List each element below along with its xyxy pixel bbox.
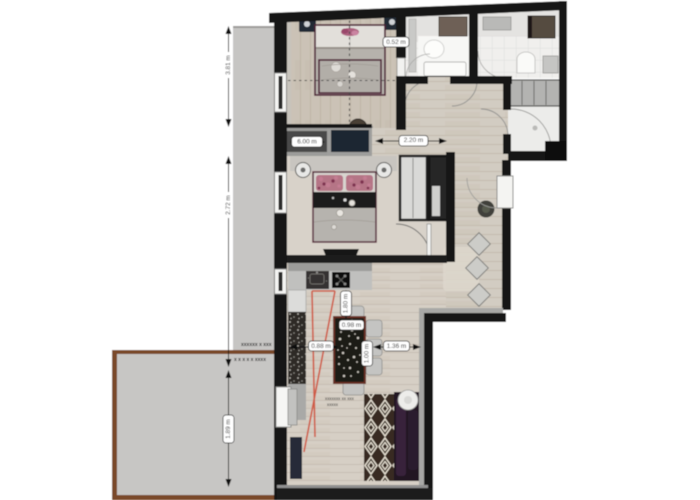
svg-text:1.80 m: 1.80 m [343, 294, 350, 314]
svg-text:xxxxxxx xx xxx: xxxxxxx xx xxx [325, 396, 355, 401]
svg-text:2.72 m: 2.72 m [225, 195, 232, 215]
svg-text:1.00 m: 1.00 m [364, 344, 371, 364]
svg-text:2.20 m: 2.20 m [404, 137, 424, 144]
svg-text:0.52 m: 0.52 m [386, 39, 406, 46]
svg-text:1.89 m: 1.89 m [225, 419, 232, 439]
svg-text:xxxxxx x xxx: xxxxxx x xxx [241, 342, 272, 348]
svg-text:xxxxx: xxxxx [327, 402, 339, 407]
svg-text:6.00 m: 6.00 m [297, 139, 317, 146]
svg-text:0.88 m: 0.88 m [311, 343, 331, 350]
svg-text:x x x x x xxxx: x x x x x xxxx [234, 357, 266, 363]
svg-text:1.36 m: 1.36 m [387, 343, 407, 350]
svg-text:3.81 m: 3.81 m [225, 55, 232, 75]
svg-text:0.98 m: 0.98 m [342, 322, 362, 329]
